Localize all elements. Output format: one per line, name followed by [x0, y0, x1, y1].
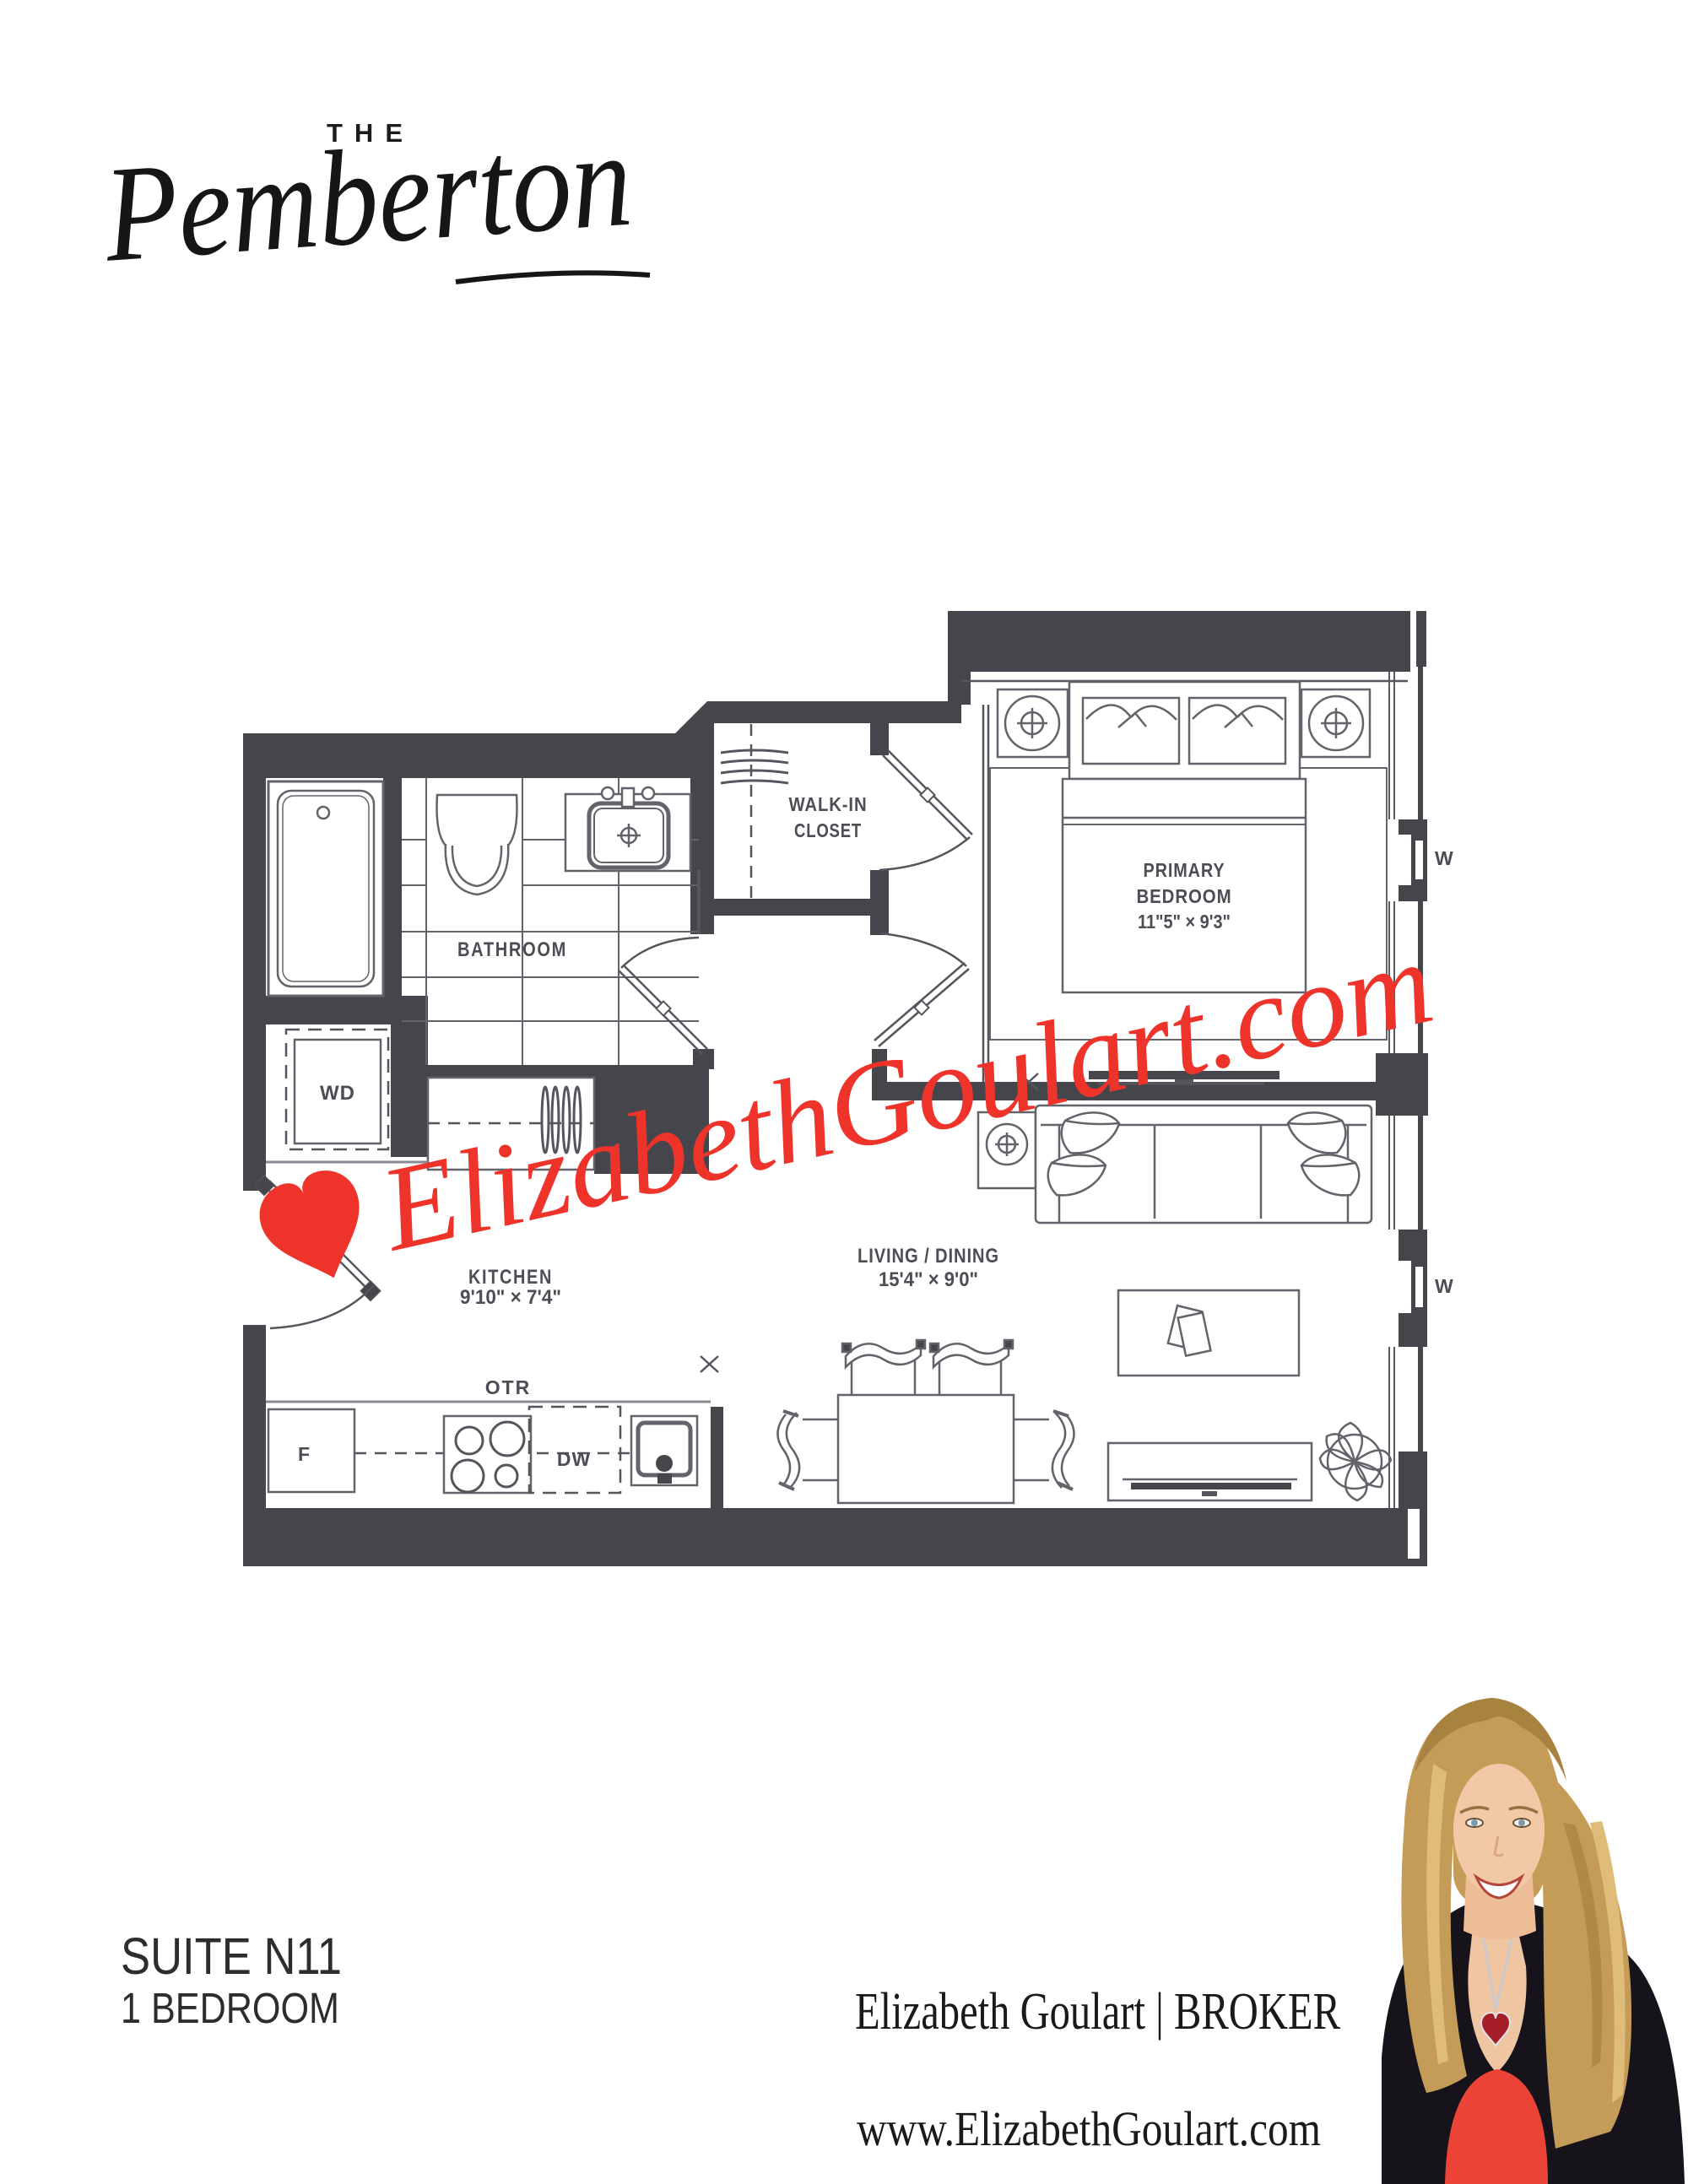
svg-text:BEDROOM: BEDROOM: [1137, 885, 1232, 907]
svg-text:WALK-IN: WALK-IN: [789, 793, 868, 815]
svg-text:9'10" × 7'4": 9'10" × 7'4": [460, 1286, 561, 1309]
svg-text:CLOSET: CLOSET: [794, 819, 862, 841]
svg-text:PRIMARY: PRIMARY: [1144, 859, 1225, 881]
svg-text:BATHROOM: BATHROOM: [457, 938, 567, 961]
svg-text:www.ElizabethGoulart.com: www.ElizabethGoulart.com: [857, 2101, 1321, 2156]
svg-text:W: W: [1435, 847, 1453, 869]
svg-text:15'4" × 9'0": 15'4" × 9'0": [879, 1268, 978, 1291]
svg-text:OTR: OTR: [485, 1376, 532, 1398]
svg-text:LIVING / DINING: LIVING / DINING: [858, 1245, 999, 1268]
svg-text:Elizabeth Goulart | BROKER: Elizabeth Goulart | BROKER: [855, 1983, 1341, 2041]
svg-text:SUITE N11: SUITE N11: [121, 1927, 342, 1985]
svg-text:W: W: [1435, 1275, 1453, 1297]
svg-text:1 BEDROOM: 1 BEDROOM: [121, 1984, 339, 2032]
svg-text:WD: WD: [320, 1082, 355, 1105]
svg-text:DW: DW: [557, 1448, 591, 1470]
svg-text:F: F: [298, 1443, 310, 1465]
svg-text:11"5" × 9'3": 11"5" × 9'3": [1138, 911, 1231, 933]
svg-text:KITCHEN: KITCHEN: [468, 1266, 553, 1289]
